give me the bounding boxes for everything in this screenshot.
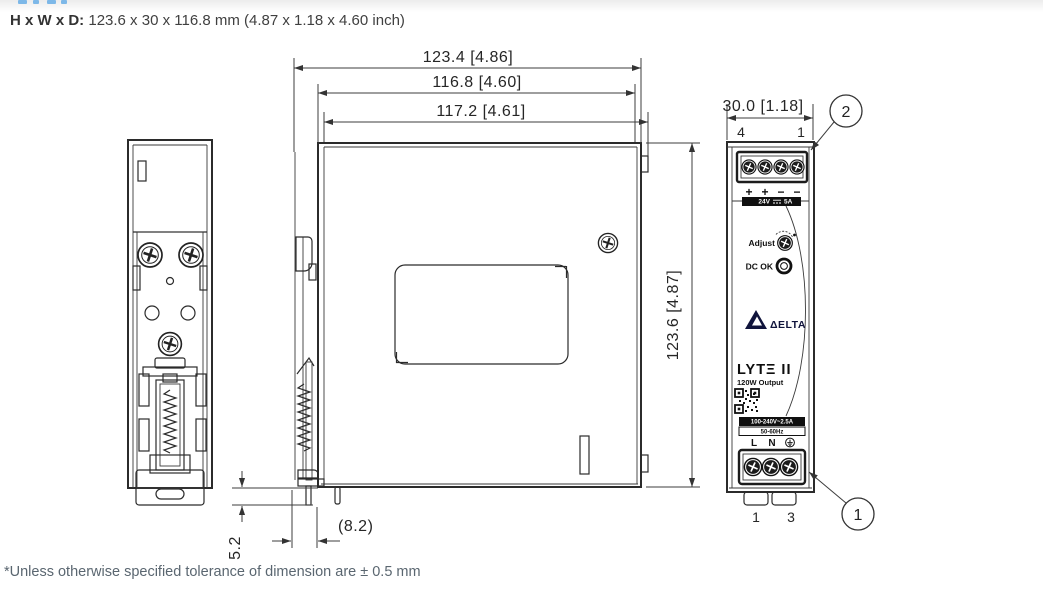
side-top-clip [641, 156, 648, 172]
terminal-screw-icon [774, 160, 788, 174]
output-current: 5A [784, 199, 793, 206]
clip-upper-tab [309, 264, 316, 280]
clip-leg [306, 486, 311, 505]
dc-ok-led-inner [781, 263, 788, 270]
dim-din-offset: (8.2) [338, 518, 373, 535]
polarity-plus: + [745, 185, 752, 199]
pin-label-4: 4 [737, 124, 745, 140]
output-rating-badge: 24V 5A [742, 197, 801, 206]
bottom-foot [772, 492, 796, 505]
technical-drawing: 123.4 [4.86] 116.8 [4.60] 117.2 [4.61] 1… [0, 0, 1043, 589]
terminal-screw-icon [758, 160, 772, 174]
input-terminal-block [739, 450, 805, 484]
extension-lines-clip-travel [232, 488, 318, 505]
clip-back-plate [295, 152, 303, 480]
screw-icon [159, 333, 182, 356]
bottom-peg [335, 487, 340, 504]
callout-output-terminal: 2 [811, 95, 862, 150]
terminal-screw-icon [762, 458, 779, 475]
polarity-plus: + [761, 185, 768, 199]
callout-input-terminal: 1 [809, 472, 874, 530]
terminal-screw-icon [742, 160, 756, 174]
pin-label-1-top: 1 [797, 124, 805, 140]
dim-width: 30.0 [1.18] [722, 98, 803, 115]
terminal-screw-icon [780, 458, 797, 475]
adjust-arrow-dot [793, 234, 796, 237]
tolerance-note: *Unless otherwise specified tolerance of… [4, 564, 421, 580]
model-name: LYTΞ II [737, 362, 791, 378]
side-bottom-clip [641, 455, 648, 472]
side-view-outline [318, 143, 641, 487]
callout-number-2: 2 [842, 104, 851, 121]
dim-depth-overall: 123.4 [4.86] [423, 49, 514, 66]
screw-icon [179, 243, 203, 267]
rear-view [128, 140, 212, 505]
bottom-foot [744, 492, 768, 505]
brand-wordmark: ΔELTA [770, 319, 806, 331]
extension-lines-din-offset [292, 490, 317, 548]
output-voltage: 24V [758, 199, 770, 206]
clip-spring-profile [298, 384, 310, 451]
dim-depth-front: 117.2 [4.61] [436, 103, 525, 120]
screw-icon [598, 233, 617, 252]
callout-number-1: 1 [854, 507, 863, 524]
clip-foot [298, 470, 318, 478]
output-power-label: 120W Output [737, 378, 784, 387]
callout-leader-line [811, 122, 834, 150]
side-view [295, 143, 648, 505]
line-label: L [751, 438, 757, 449]
front-view: 30.0 [1.18] 4 1 + + − − [722, 95, 874, 530]
dc-ok-label: DC OK [746, 262, 774, 272]
pin-label-3: 3 [787, 509, 795, 525]
clip-front-plate [306, 362, 312, 480]
polarity-minus: − [777, 185, 784, 199]
adjust-label: Adjust [749, 238, 776, 248]
adjust-potentiometer [778, 236, 793, 251]
dim-clip-travel: 5.2 [227, 536, 244, 560]
datasheet-dimension-page: H x W x D: 123.6 x 30 x 116.8 mm (4.87 x… [0, 0, 1043, 589]
terminal-screw-icon [744, 458, 761, 475]
screw-icon [138, 243, 162, 267]
polarity-minus: − [793, 185, 800, 199]
output-terminal-block [737, 152, 807, 182]
dim-depth-body: 116.8 [4.60] [432, 74, 521, 91]
neutral-label: N [768, 438, 775, 449]
input-rating: 100-240V~2.5A [751, 420, 794, 426]
clip-pull-slot [156, 489, 184, 499]
dim-height: 123.6 [4.87] [665, 270, 682, 361]
pin-label-1-bottom: 1 [752, 509, 760, 525]
input-frequency: 50-60Hz [761, 430, 784, 436]
clip-release-hook [297, 358, 314, 374]
clip-upper-hook [296, 237, 312, 271]
terminal-screw-icon [790, 160, 804, 174]
